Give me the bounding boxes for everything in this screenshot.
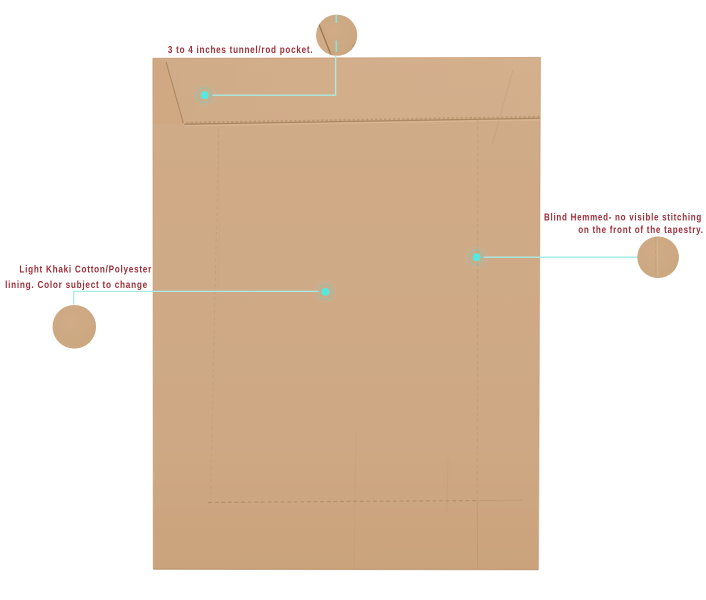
svg-text:Light Khaki Cotton/Polyester: Light Khaki Cotton/Polyester: [19, 265, 152, 276]
svg-text:3 to 4 inches tunnel/rod pocke: 3 to 4 inches tunnel/rod pocket.: [168, 45, 313, 56]
svg-text:on the front of the tapestry.: on the front of the tapestry.: [578, 225, 704, 236]
svg-text:lining. Color subject to chang: lining. Color subject to change: [5, 280, 148, 291]
svg-text:Blind Hemmed- no visible stitc: Blind Hemmed- no visible stitching: [544, 213, 702, 224]
